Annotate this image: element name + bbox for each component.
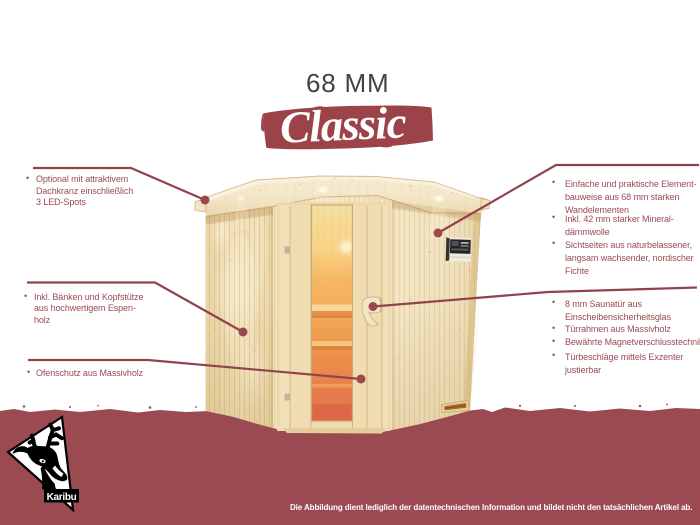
- svg-text:Karibu: Karibu: [47, 492, 77, 503]
